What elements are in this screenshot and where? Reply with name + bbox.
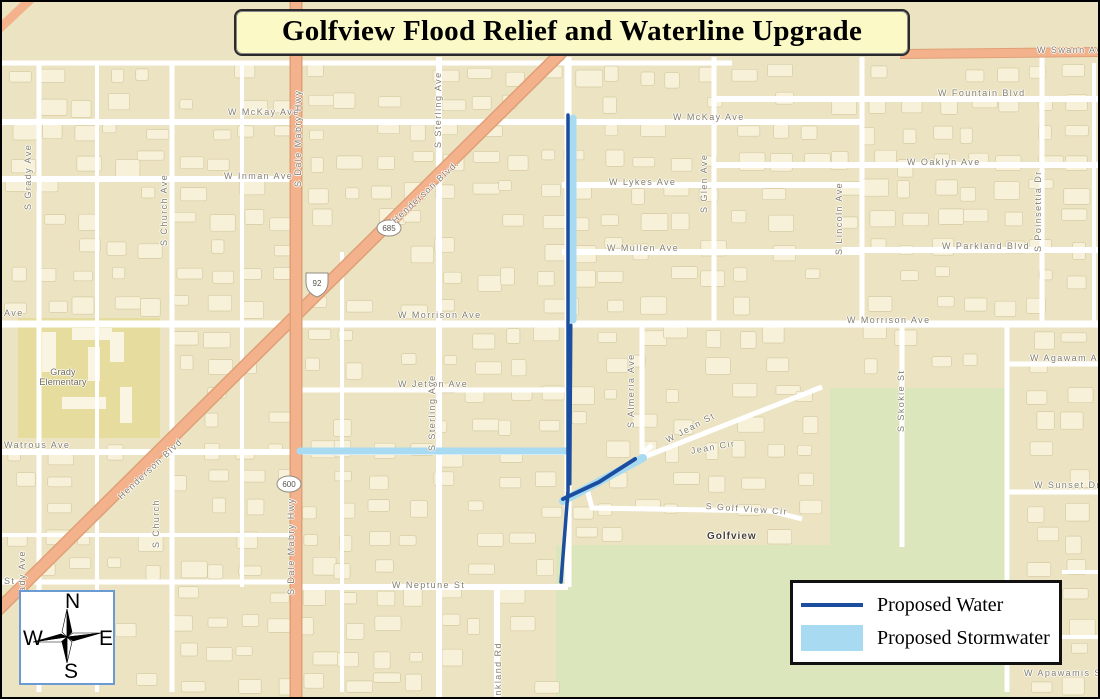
street-label-fountain: W Fountain Blvd [938, 88, 1026, 98]
water-parallel-segment [570, 325, 571, 484]
street-label-mckay-right: W McKay Ave [673, 112, 745, 122]
street-label-st-fragment: St [4, 576, 15, 586]
street-label-watrous: Watrous Ave [4, 440, 70, 450]
street-label-dale-mabry-lower: S Dale Mabry Hwy [286, 497, 296, 595]
legend: Proposed Water Proposed Stormwater [790, 580, 1062, 665]
street-label-oaklyn: W Oaklyn Ave [907, 157, 981, 167]
proposed-water-swatch [801, 603, 863, 607]
route-685-label: 685 [382, 224, 396, 233]
proposed-stormwater-swatch [801, 625, 863, 651]
legend-stormwater-label: Proposed Stormwater [877, 627, 1050, 650]
street-label-sterling-lower: S Sterling Ave [427, 374, 437, 451]
street-label-dale-mabry-upper: S Dale Mabry Hwy [293, 89, 303, 187]
street-label-inman: W Inman Ave [224, 171, 293, 181]
compass-east-label: E [99, 627, 113, 651]
compass-south-label: S [64, 660, 78, 684]
street-label-morrison-right: W Morrison Ave [847, 315, 931, 325]
street-label-almeria: S Almeria Ave [626, 353, 636, 428]
street-label-grady-lower: ady Ave [17, 550, 27, 592]
map-title: Golfview Flood Relief and Waterline Upgr… [234, 9, 910, 56]
place-label-golfview: Golfview [707, 532, 757, 542]
street-label-mckay-left: W McKay Ave [228, 107, 300, 117]
street-label-sterling-upper: S Sterling Ave [433, 71, 443, 148]
street-label-lykes: W Lykes Ave [609, 177, 676, 187]
street-label-morrison-fragment: Ave [4, 308, 24, 318]
street-label-lincoln: S Lincoln Ave [834, 182, 844, 255]
street-label-church-lower: S Church [151, 499, 161, 548]
street-label-sunset: W Sunset Dr [1034, 480, 1100, 490]
legend-stormwater-row: Proposed Stormwater [801, 625, 1051, 651]
street-label-grady-ave: S Grady Ave [23, 144, 33, 210]
compass-north-label: N [65, 590, 80, 614]
street-label-parkland: W Parkland Blvd [942, 241, 1030, 251]
street-label-poinsettia: S Poinsettia Dr [1033, 170, 1043, 252]
park-area [830, 388, 1010, 548]
compass-rose: N E S W [19, 590, 115, 685]
street-label-frankland: ankland Rd [493, 642, 503, 699]
street-label-agawam: W Agawam Ave [1030, 353, 1100, 363]
street-label-swann: W Swann Av [1037, 45, 1100, 55]
street-label-neptune: W Neptune St [392, 580, 465, 590]
compass-west-label: W [23, 627, 43, 651]
street-label-morrison-center: W Morrison Ave [398, 310, 482, 320]
street-label-skokie: S Skokie St [896, 370, 906, 432]
street-label-church-ave: S Church Ave [159, 174, 169, 246]
legend-water-row: Proposed Water [801, 594, 1051, 617]
street-label-glen: S Glen Ave [699, 154, 709, 213]
route-92-label: 92 [313, 279, 322, 288]
place-label-grady-elementary: Grady Elementary [30, 367, 96, 387]
map: 685 92 600 W Swann Av W Fountain Blvd W … [0, 0, 1100, 699]
street-label-mullen: W Mullen Ave [607, 243, 679, 253]
street-label-apawamis: W Apawamis St [1024, 668, 1100, 678]
legend-water-label: Proposed Water [877, 594, 1003, 617]
route-600-label: 600 [282, 480, 296, 489]
